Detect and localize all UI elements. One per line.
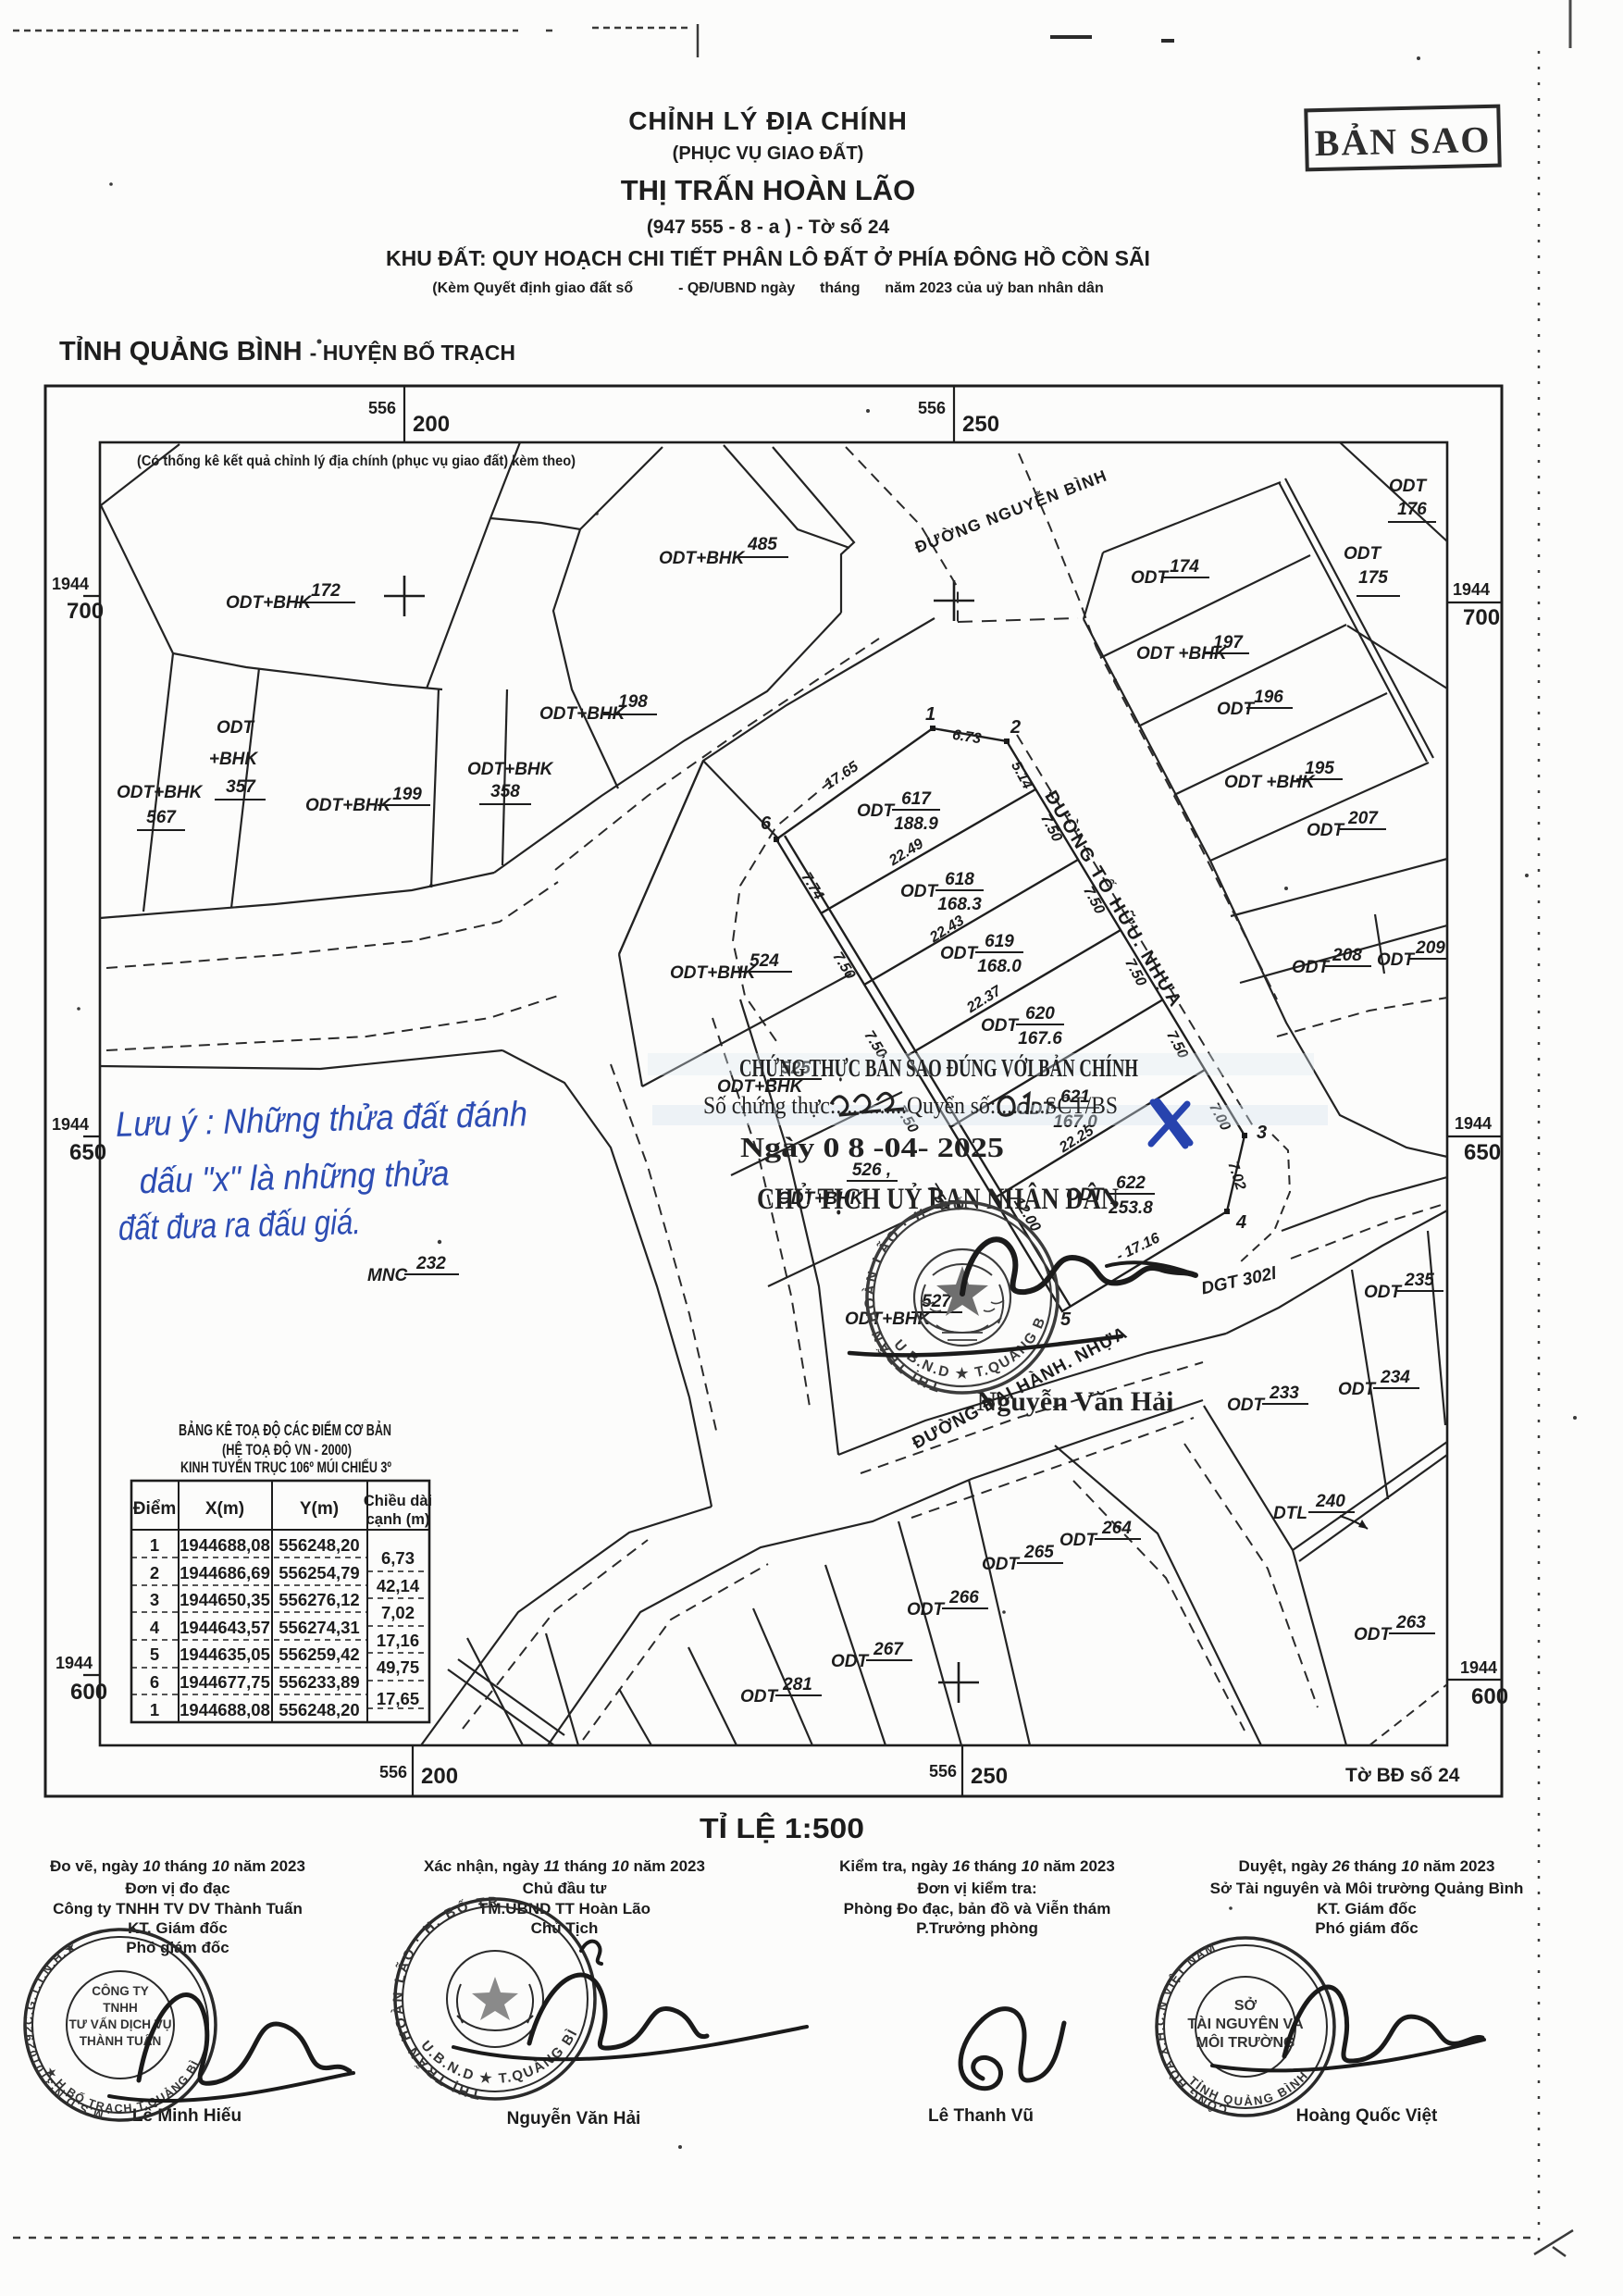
svg-text:200: 200 xyxy=(421,1764,458,1789)
svg-text:266: 266 xyxy=(948,1588,979,1607)
svg-text:7,02: 7,02 xyxy=(381,1603,415,1622)
svg-text:209: 209 xyxy=(1415,938,1445,958)
svg-text:195: 195 xyxy=(1305,759,1334,778)
svg-text:235: 235 xyxy=(1404,1271,1434,1290)
svg-text:650: 650 xyxy=(1464,1140,1501,1165)
svg-text:4: 4 xyxy=(150,1618,160,1637)
svg-text:700: 700 xyxy=(67,599,104,624)
svg-text:CÔNG TY: CÔNG TY xyxy=(92,1984,149,1998)
svg-text:Tờ BĐ số 24: Tờ BĐ số 24 xyxy=(1345,1765,1460,1786)
svg-text:BẢN SAO: BẢN SAO xyxy=(1314,118,1492,164)
svg-text:556233,89: 556233,89 xyxy=(279,1672,359,1692)
svg-text:Nguyễn Văn Hải: Nguyễn Văn Hải xyxy=(977,1386,1174,1417)
svg-text:MNC: MNC xyxy=(367,1266,408,1285)
svg-text:ODT: ODT xyxy=(857,801,896,821)
svg-text:Đo vẽ, ngày 10 tháng 10 năm: Đo vẽ, ngày 10 tháng 10 năm 2023 xyxy=(50,1857,305,1875)
svg-text:240: 240 xyxy=(1315,1492,1345,1511)
svg-text:ODT+BHK: ODT+BHK xyxy=(670,963,757,983)
svg-text:267: 267 xyxy=(873,1640,904,1659)
svg-text:ODT: ODT xyxy=(831,1652,870,1671)
svg-text:485: 485 xyxy=(747,535,777,554)
svg-text:281: 281 xyxy=(782,1675,812,1694)
svg-text:CHỨNG THỰC BẢN SAO ĐÚNG VỚI BẢ: CHỨNG THỰC BẢN SAO ĐÚNG VỚI BẢN CHÍNH xyxy=(739,1054,1138,1082)
svg-text:TNHH: TNHH xyxy=(103,2001,138,2015)
svg-text:KHU ĐẤT: QUY HOẠCH CHI TIẾT PH: KHU ĐẤT: QUY HOẠCH CHI TIẾT PHÂN LÔ ĐẤT … xyxy=(386,244,1150,270)
svg-text:(947 555 - 8 - a ) - Tờ số 24: (947 555 - 8 - a ) - Tờ số 24 xyxy=(647,217,890,238)
svg-text:ODT+BHK: ODT+BHK xyxy=(659,549,746,568)
svg-text:ODT: ODT xyxy=(900,882,939,901)
svg-text:+BHK: +BHK xyxy=(209,750,259,769)
svg-text:168.3: 168.3 xyxy=(937,895,982,914)
svg-text:Đơn vị đo đạc: Đơn vị đo đạc xyxy=(125,1880,229,1897)
svg-text:ODT: ODT xyxy=(1307,821,1345,840)
svg-text:1: 1 xyxy=(150,1535,159,1555)
svg-text:1944677,75: 1944677,75 xyxy=(180,1672,270,1692)
svg-text:TM.UBND TT Hoàn Lão: TM.UBND TT Hoàn Lão xyxy=(478,1900,650,1917)
svg-text:250: 250 xyxy=(971,1764,1008,1789)
svg-text:5: 5 xyxy=(1060,1309,1072,1330)
svg-text:5: 5 xyxy=(150,1644,159,1664)
svg-text:265: 265 xyxy=(1023,1543,1054,1562)
svg-text:172: 172 xyxy=(311,581,341,601)
svg-text:Phó giám đốc: Phó giám đốc xyxy=(1315,1919,1418,1937)
svg-text:ODT: ODT xyxy=(1377,950,1416,970)
svg-text:ODT +BHK: ODT +BHK xyxy=(1224,773,1316,792)
svg-text:CHỈNH LÝ ĐỊA CHÍNH: CHỈNH LÝ ĐỊA CHÍNH xyxy=(628,105,908,135)
svg-text:ODT: ODT xyxy=(1344,544,1382,564)
svg-text:263: 263 xyxy=(1395,1613,1426,1632)
svg-text:ODT+BHK: ODT+BHK xyxy=(117,783,204,802)
svg-text:(PHỤC VỤ GIAO ĐẤT): (PHỤC VỤ GIAO ĐẤT) xyxy=(673,143,864,164)
svg-text:167.6: 167.6 xyxy=(1018,1029,1062,1049)
svg-text:Kiểm tra, ngày 16 tháng 10 n: Kiểm tra, ngày 16 tháng 10 năm 2023 xyxy=(839,1857,1115,1875)
svg-text:556: 556 xyxy=(368,399,396,417)
svg-text:1944: 1944 xyxy=(1455,1114,1492,1133)
svg-text:ODT: ODT xyxy=(1059,1531,1098,1550)
svg-text:1944635,05: 1944635,05 xyxy=(180,1644,270,1664)
svg-text:199: 199 xyxy=(392,785,422,804)
svg-text:ODT: ODT xyxy=(740,1687,779,1706)
svg-text:1944688,08: 1944688,08 xyxy=(180,1700,270,1719)
svg-text:357: 357 xyxy=(226,777,256,797)
svg-text:Số chứng thực:.............Quy: Số chứng thực:.............Quyển số:....… xyxy=(703,1092,1118,1119)
svg-text:ODT: ODT xyxy=(1364,1283,1403,1302)
svg-text:17,65: 17,65 xyxy=(377,1689,419,1708)
svg-text:232: 232 xyxy=(415,1254,446,1273)
svg-text:176: 176 xyxy=(1397,500,1427,519)
svg-text:174: 174 xyxy=(1170,557,1199,577)
svg-text:556274,31: 556274,31 xyxy=(279,1618,359,1637)
svg-text:6: 6 xyxy=(761,813,772,834)
svg-text:524: 524 xyxy=(750,951,779,971)
svg-text:Y(m): Y(m) xyxy=(300,1499,339,1519)
svg-text:42,14: 42,14 xyxy=(377,1576,420,1595)
svg-text:ODT: ODT xyxy=(217,718,255,738)
svg-text:1944: 1944 xyxy=(52,575,89,593)
svg-text:Xác nhận, ngày 11 tháng 10 n: Xác nhận, ngày 11 tháng 10 năm 2023 xyxy=(424,1857,705,1875)
svg-text:618: 618 xyxy=(945,870,974,889)
svg-text:X(m): X(m) xyxy=(205,1499,244,1519)
svg-text:KINH TUYẾN TRỤC 106º MÚI CHIẾU: KINH TUYẾN TRỤC 106º MÚI CHIẾU 3º xyxy=(180,1458,391,1476)
svg-text:Sở Tài nguyên và Môi trường Qu: Sở Tài nguyên và Môi trường Quảng Bình xyxy=(1210,1880,1524,1897)
svg-text:197: 197 xyxy=(1213,633,1244,652)
svg-text:556254,79: 556254,79 xyxy=(279,1563,359,1582)
svg-text:3: 3 xyxy=(150,1590,159,1609)
svg-text:Duyệt, ngày 26 tháng 10 năm: Duyệt, ngày 26 tháng 10 năm 2023 xyxy=(1239,1857,1495,1875)
svg-text:P.Trưởng phòng: P.Trưởng phòng xyxy=(916,1919,1038,1937)
svg-text:ODT: ODT xyxy=(1227,1396,1266,1415)
svg-text:Hoàng Quốc Việt: Hoàng Quốc Việt xyxy=(1296,2106,1438,2126)
svg-text:Công ty TNHH TV DV Thành Tuấn: Công ty TNHH TV DV Thành Tuấn xyxy=(53,1900,303,1917)
svg-text:168.0: 168.0 xyxy=(977,957,1022,976)
svg-text:1944643,57: 1944643,57 xyxy=(180,1618,270,1637)
svg-text:556: 556 xyxy=(929,1762,957,1781)
svg-text:207: 207 xyxy=(1347,809,1379,828)
svg-text:KT. Giám đốc: KT. Giám đốc xyxy=(128,1919,228,1937)
svg-text:ODT: ODT xyxy=(1354,1625,1393,1644)
svg-text:6: 6 xyxy=(150,1672,159,1692)
svg-text:1944: 1944 xyxy=(56,1654,93,1672)
svg-text:1944650,35: 1944650,35 xyxy=(180,1590,270,1609)
svg-text:556: 556 xyxy=(379,1763,407,1781)
svg-text:556: 556 xyxy=(918,399,946,417)
svg-text:1944: 1944 xyxy=(52,1115,89,1134)
svg-text:233: 233 xyxy=(1269,1384,1299,1403)
svg-text:567: 567 xyxy=(146,808,177,827)
svg-text:ODT: ODT xyxy=(1292,958,1331,977)
svg-text:Chủ đầu tư: Chủ đầu tư xyxy=(523,1880,607,1897)
svg-text:2: 2 xyxy=(150,1563,159,1582)
svg-text:700: 700 xyxy=(1463,605,1500,630)
svg-text:1944: 1944 xyxy=(1460,1658,1497,1677)
svg-text:1944686,69: 1944686,69 xyxy=(180,1563,270,1582)
svg-text:622: 622 xyxy=(1116,1173,1146,1193)
svg-text:ODT+BHK: ODT+BHK xyxy=(467,760,554,779)
svg-text:TÀI NGUYÊN VÀ: TÀI NGUYÊN VÀ xyxy=(1187,2015,1304,2032)
svg-text:ODT: ODT xyxy=(1338,1380,1377,1399)
svg-text:556248,20: 556248,20 xyxy=(279,1700,359,1719)
svg-text:619: 619 xyxy=(985,932,1014,951)
svg-text:cạnh (m): cạnh (m) xyxy=(366,1511,430,1528)
svg-text:MÔI TRƯỜNG: MÔI TRƯỜNG xyxy=(1196,2033,1295,2051)
svg-text:dấu "x" là những thửa: dấu "x" là những thửa xyxy=(139,1154,450,1201)
svg-text:600: 600 xyxy=(70,1680,107,1705)
svg-text:556259,42: 556259,42 xyxy=(279,1644,359,1664)
svg-text:1: 1 xyxy=(925,704,935,725)
svg-text:2: 2 xyxy=(1010,717,1021,738)
svg-text:620: 620 xyxy=(1025,1004,1055,1024)
svg-text:556276,12: 556276,12 xyxy=(279,1590,359,1609)
svg-text:ODT: ODT xyxy=(940,944,979,963)
svg-text:KT. Giám đốc: KT. Giám đốc xyxy=(1317,1900,1417,1917)
svg-text:3: 3 xyxy=(1257,1123,1267,1143)
svg-text:556248,20: 556248,20 xyxy=(279,1535,359,1555)
svg-text:đất đưa ra đấu giá.: đất đưa ra đấu giá. xyxy=(118,1203,361,1248)
svg-text:1: 1 xyxy=(150,1700,159,1719)
svg-text:200: 200 xyxy=(413,412,450,437)
svg-text:THỊ TRẤN HOÀN LÃO: THỊ TRẤN HOÀN LÃO xyxy=(621,174,916,206)
svg-text:Phòng Đo đạc, bản đồ và Viễn t: Phòng Đo đạc, bản đồ và Viễn thám xyxy=(844,1900,1111,1917)
svg-text:ODT: ODT xyxy=(981,1016,1020,1036)
svg-text:(HỆ TOẠ ĐỘ VN - 2000): (HỆ TOẠ ĐỘ VN - 2000) xyxy=(222,1441,352,1458)
svg-text:526 ,: 526 , xyxy=(852,1160,891,1180)
svg-text:196: 196 xyxy=(1254,688,1283,707)
svg-text:617: 617 xyxy=(901,789,932,809)
svg-text:1944: 1944 xyxy=(1453,580,1490,599)
svg-text:234: 234 xyxy=(1380,1368,1410,1387)
svg-text:DTL: DTL xyxy=(1273,1504,1307,1523)
svg-text:650: 650 xyxy=(69,1140,106,1165)
svg-text:1944688,08: 1944688,08 xyxy=(180,1535,270,1555)
svg-text:BẢNG KÊ TOẠ ĐỘ CÁC ĐIỂM CƠ BẢN: BẢNG KÊ TOẠ ĐỘ CÁC ĐIỂM CƠ BẢN xyxy=(179,1420,391,1439)
svg-text:Chiều dài: Chiều dài xyxy=(364,1493,432,1509)
svg-text:TỈ LỆ 1:500: TỈ LỆ 1:500 xyxy=(700,1811,864,1844)
svg-text:SỞ: SỞ xyxy=(1234,1996,1258,2014)
svg-text:Đơn vị kiểm tra:: Đơn vị kiểm tra: xyxy=(917,1880,1036,1897)
svg-text:188.9: 188.9 xyxy=(894,814,938,834)
svg-text:527: 527 xyxy=(922,1292,952,1311)
svg-text:17,16: 17,16 xyxy=(377,1631,419,1650)
svg-text:Điểm: Điểm xyxy=(133,1499,176,1519)
svg-text:Lê Thanh Vũ: Lê Thanh Vũ xyxy=(928,2106,1034,2126)
svg-text:6,73: 6,73 xyxy=(381,1548,415,1568)
svg-text:250: 250 xyxy=(962,412,999,437)
svg-text:ODT: ODT xyxy=(1217,700,1256,719)
svg-text:358: 358 xyxy=(490,782,520,801)
svg-text:198: 198 xyxy=(618,692,648,712)
svg-text:ODT: ODT xyxy=(1389,477,1428,496)
svg-text:49,75: 49,75 xyxy=(377,1657,419,1677)
svg-text:264: 264 xyxy=(1101,1519,1132,1538)
svg-text:ODT: ODT xyxy=(907,1600,946,1620)
svg-text:Ngày 0 8 -04- 2025: Ngày 0 8 -04- 2025 xyxy=(740,1131,1004,1163)
svg-text:175: 175 xyxy=(1358,568,1388,588)
svg-text:TỈNH QUẢNG BÌNH - HUYỆN BỐ TRẠ: TỈNH QUẢNG BÌNH - HUYỆN BỐ TRẠCH xyxy=(59,335,515,366)
svg-text:ODT: ODT xyxy=(982,1555,1021,1574)
svg-text:600: 600 xyxy=(1471,1684,1508,1709)
svg-text:4: 4 xyxy=(1235,1212,1246,1233)
svg-text:(Kèm Quyết định giao đất số: (Kèm Quyết định giao đất số - QĐ/UBND ng… xyxy=(432,280,1103,296)
svg-text:208: 208 xyxy=(1332,946,1362,965)
svg-text:Nguyễn Văn Hải: Nguyễn Văn Hải xyxy=(507,2108,641,2128)
